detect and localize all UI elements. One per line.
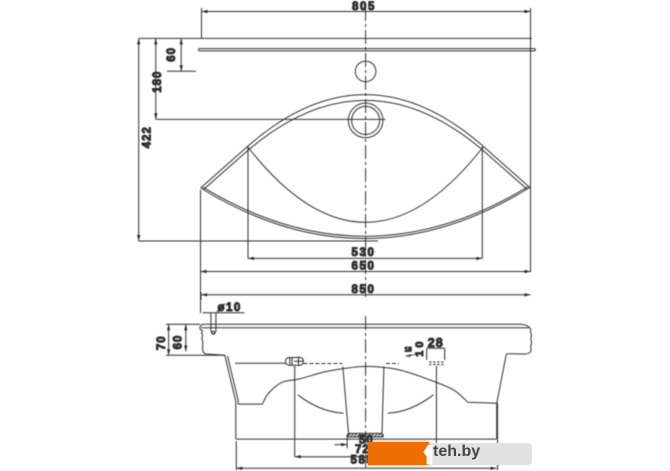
svg-text:60: 60 — [166, 47, 178, 62]
svg-text:15: 15 — [405, 347, 413, 354]
svg-text:850: 850 — [352, 284, 376, 296]
svg-text:28: 28 — [428, 336, 444, 350]
svg-text:180: 180 — [152, 71, 164, 93]
svg-text:422: 422 — [142, 126, 154, 148]
svg-text:ø10: ø10 — [218, 302, 242, 314]
svg-text:530: 530 — [352, 247, 376, 259]
svg-text:70: 70 — [156, 335, 168, 350]
svg-text:805: 805 — [352, 1, 376, 13]
svg-text:10: 10 — [414, 339, 426, 357]
svg-text:650: 650 — [352, 261, 376, 273]
svg-text:60: 60 — [172, 335, 184, 350]
